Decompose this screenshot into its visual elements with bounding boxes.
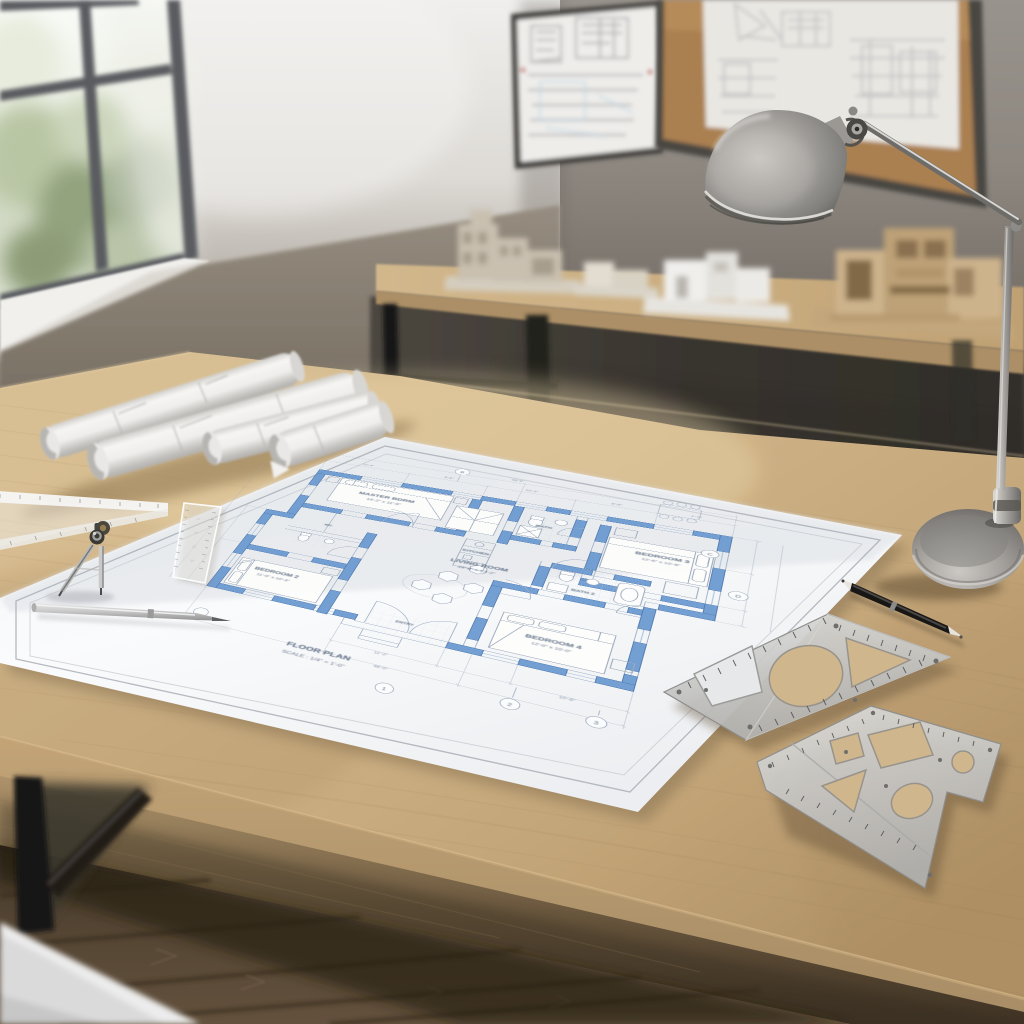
svg-text:10: 10 (196, 518, 200, 522)
svg-text:30: 30 (192, 546, 196, 550)
svg-text:20: 20 (194, 532, 198, 536)
svg-text:40: 40 (190, 560, 194, 564)
